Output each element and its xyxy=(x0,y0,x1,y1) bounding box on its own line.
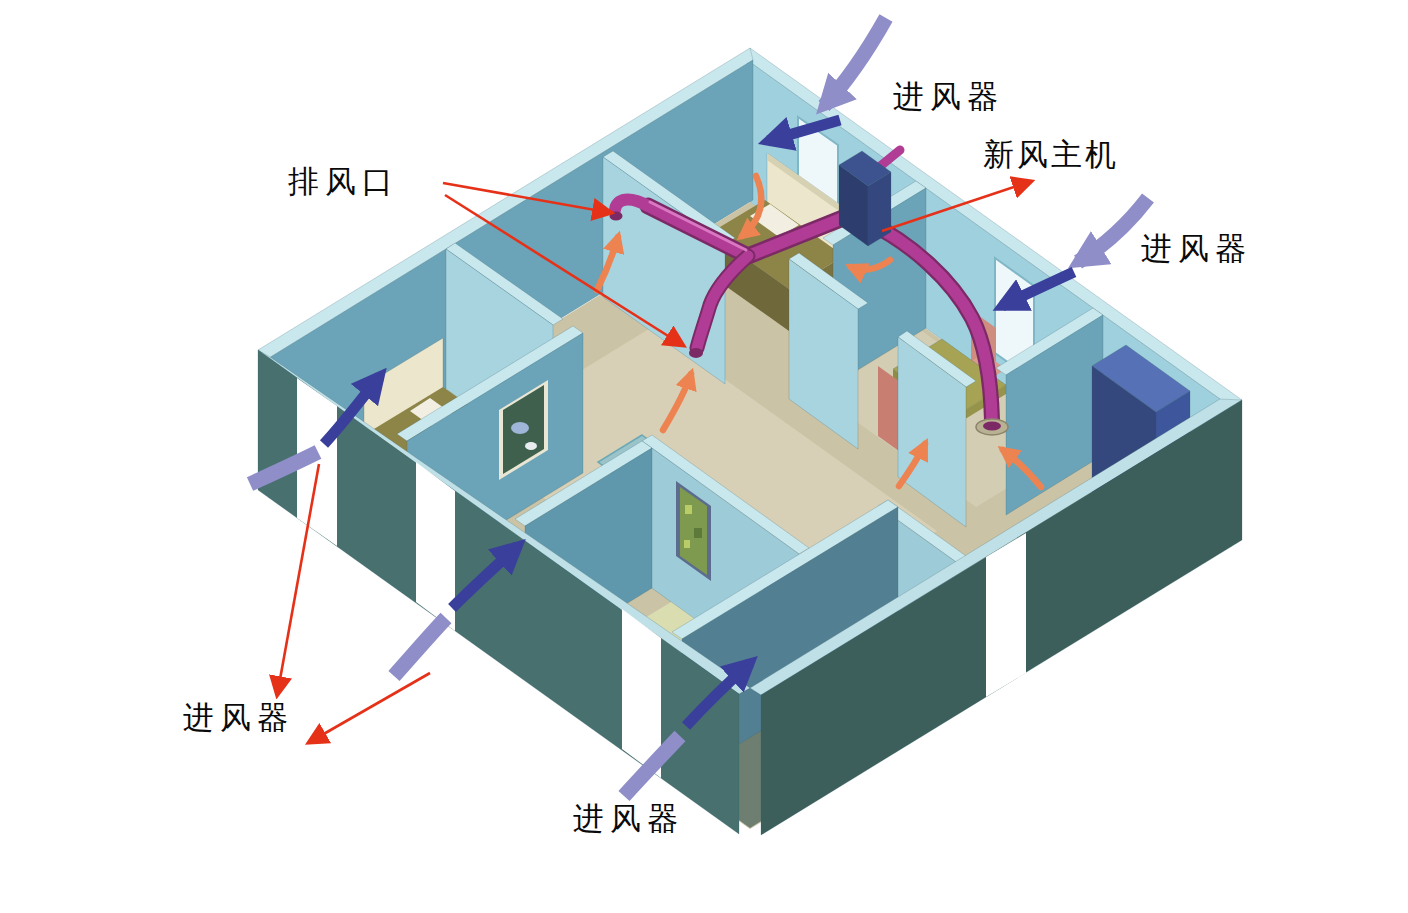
label-air-inlet-top: 进风器 xyxy=(893,80,1004,114)
opening-southeast xyxy=(986,533,1026,697)
label-exhaust-outlet: 排风口 xyxy=(288,165,399,199)
window-living-room xyxy=(416,462,455,631)
diagram-canvas: 进风器 新风主机 进风器 排风口 进风器 进风器 xyxy=(0,0,1408,913)
label-air-inlet-right: 进风器 xyxy=(1141,232,1252,266)
ventilation-diagram xyxy=(0,0,1408,913)
annotation-inlet-living xyxy=(308,673,430,743)
label-fresh-air-unit: 新风主机 xyxy=(983,138,1119,172)
label-air-inlet-bottom-center: 进风器 xyxy=(573,802,684,836)
label-air-inlet-bottom-left: 进风器 xyxy=(183,701,294,735)
